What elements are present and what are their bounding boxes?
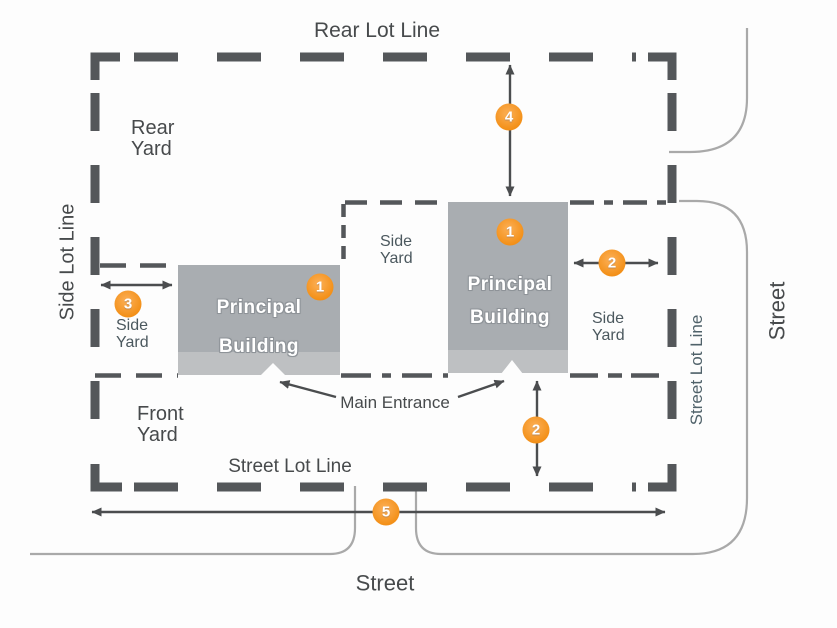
marker-1-left-building: 1 [307,274,334,301]
arrow-main-entrance-right [458,381,504,397]
street-right-label: Street [765,282,788,341]
curb-right-upper [669,28,747,152]
main-entrance-label: Main Entrance [340,394,450,412]
setback-lines [95,203,668,376]
rear-lot-line-label: Rear Lot Line [314,20,440,42]
street-lot-line-right-label: Street Lot Line [688,315,706,426]
lot-corner-bottom-left [95,464,122,487]
lot-corner-top-right [648,57,672,80]
lot-corner-bottom-right [648,464,672,487]
marker-2-side-setback: 2 [599,250,626,277]
arrow-main-entrance-left [280,382,336,397]
street-curb-lines [30,28,747,554]
street-bottom-label: Street [356,571,415,594]
marker-5-street-frontage: 5 [373,499,400,526]
side-yard-left-label: Side Yard [116,318,149,352]
front-yard-label: Front Yard [137,404,184,446]
entrance-notches [260,360,523,376]
curb-bottom-left [30,486,355,554]
side-lot-line-label: Side Lot Line [57,204,78,321]
entrance-notch-left [260,363,286,376]
marker-1-right-building: 1 [497,219,524,246]
side-yard-right-label: Side Yard [592,311,625,345]
marker-4-rear-setback: 4 [496,104,523,131]
zoning-lot-diagram: Principal Building Principal Building [0,0,837,628]
marker-3-side-setback: 3 [115,291,142,318]
lot-corner-top-left [95,57,120,80]
entrance-notch-right [501,360,523,374]
marker-2-front-setback: 2 [523,417,550,444]
rear-yard-label: Rear Yard [131,118,174,160]
street-lot-line-bottom-label: Street Lot Line [228,457,352,477]
side-yard-middle-label: Side Yard [380,234,413,268]
